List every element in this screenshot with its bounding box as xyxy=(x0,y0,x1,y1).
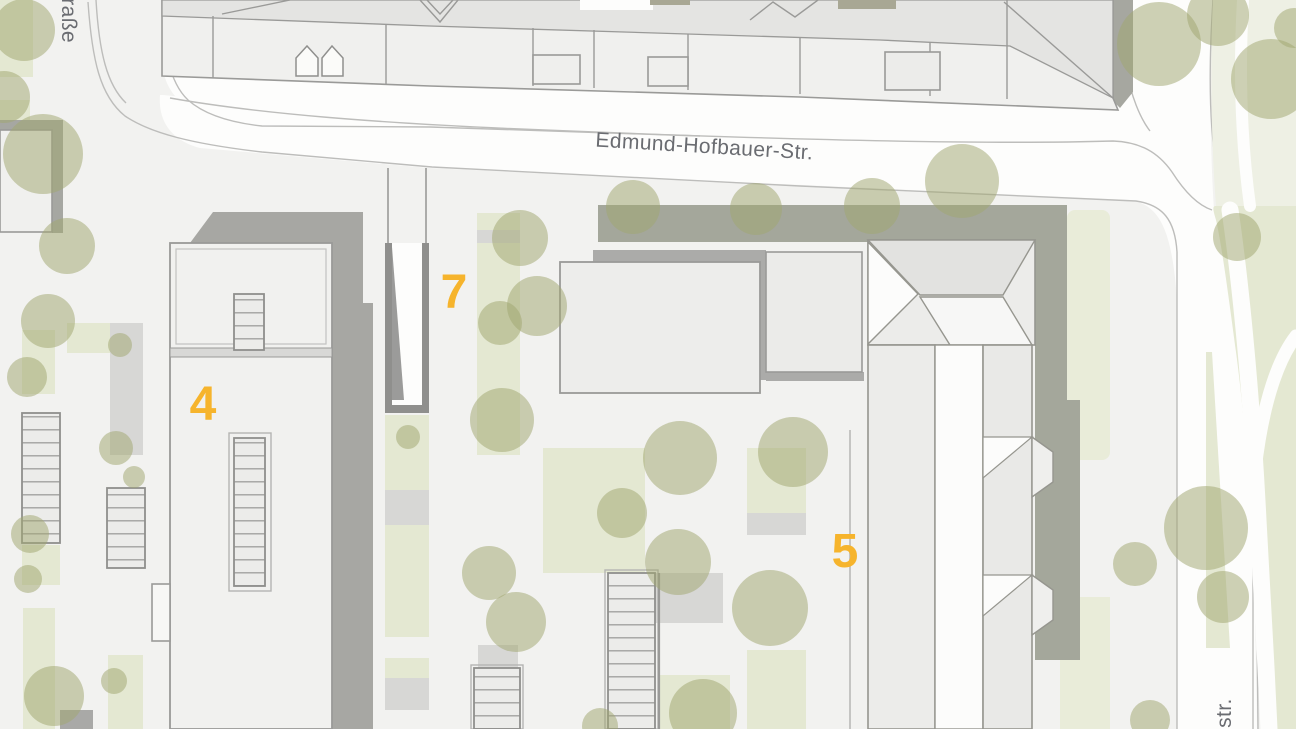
courtyard-notch xyxy=(580,0,653,10)
tree xyxy=(462,546,516,600)
street-label-left: traße xyxy=(57,0,80,43)
annex xyxy=(885,52,940,90)
stairs xyxy=(608,573,655,729)
entrance-niche xyxy=(152,584,170,641)
lawn xyxy=(385,658,429,678)
wing-west-bright-roof xyxy=(935,345,983,729)
tree xyxy=(730,183,782,235)
site-plan-map[interactable]: Edmund-Hofbauer-Str. traße nstr. 4 7 5 xyxy=(0,0,1296,729)
tree xyxy=(108,333,132,357)
wing-west-roof xyxy=(868,345,935,729)
stairwell xyxy=(234,438,265,586)
tree xyxy=(1213,213,1261,261)
stairwell xyxy=(234,294,264,350)
street-label-right: nstr. xyxy=(1213,698,1236,729)
tree xyxy=(21,294,75,348)
tree xyxy=(123,466,145,488)
wing-east-roof xyxy=(983,345,1032,729)
tree xyxy=(478,301,522,345)
annex xyxy=(533,55,580,84)
tree xyxy=(643,421,717,495)
tree xyxy=(732,570,808,646)
annex xyxy=(648,57,688,86)
tree xyxy=(597,488,647,538)
tree xyxy=(14,565,42,593)
tree xyxy=(3,114,83,194)
tree xyxy=(470,388,534,452)
tree xyxy=(758,417,828,487)
tree xyxy=(606,180,660,234)
tree xyxy=(101,668,127,694)
roof-accent xyxy=(838,0,896,9)
tree xyxy=(1164,486,1248,570)
tree xyxy=(24,666,84,726)
stairs xyxy=(474,668,520,729)
roof-accent xyxy=(650,0,690,5)
tree xyxy=(844,178,900,234)
building-7-label[interactable]: 7 xyxy=(441,266,468,319)
tree xyxy=(925,144,999,218)
tree xyxy=(1113,542,1157,586)
building-shadow xyxy=(766,372,864,381)
tree xyxy=(1197,571,1249,623)
annex-flat-roof xyxy=(560,262,760,393)
tree xyxy=(7,357,47,397)
annex-flat-roof xyxy=(766,252,862,372)
building-4[interactable] xyxy=(152,212,373,729)
tree xyxy=(486,592,546,652)
paving xyxy=(747,513,806,535)
stairs xyxy=(107,488,145,568)
building-5-label[interactable]: 5 xyxy=(832,525,859,578)
tree xyxy=(396,425,420,449)
map-viewport[interactable]: Edmund-Hofbauer-Str. traße nstr. 4 7 5 xyxy=(0,0,1296,729)
lawn xyxy=(385,525,429,637)
building-4-label[interactable]: 4 xyxy=(190,378,217,431)
paving xyxy=(385,490,429,525)
tree xyxy=(99,431,133,465)
tree xyxy=(11,515,49,553)
tree xyxy=(645,529,711,595)
lawn xyxy=(747,650,806,729)
tree xyxy=(492,210,548,266)
paving xyxy=(385,678,429,710)
tree xyxy=(39,218,95,274)
